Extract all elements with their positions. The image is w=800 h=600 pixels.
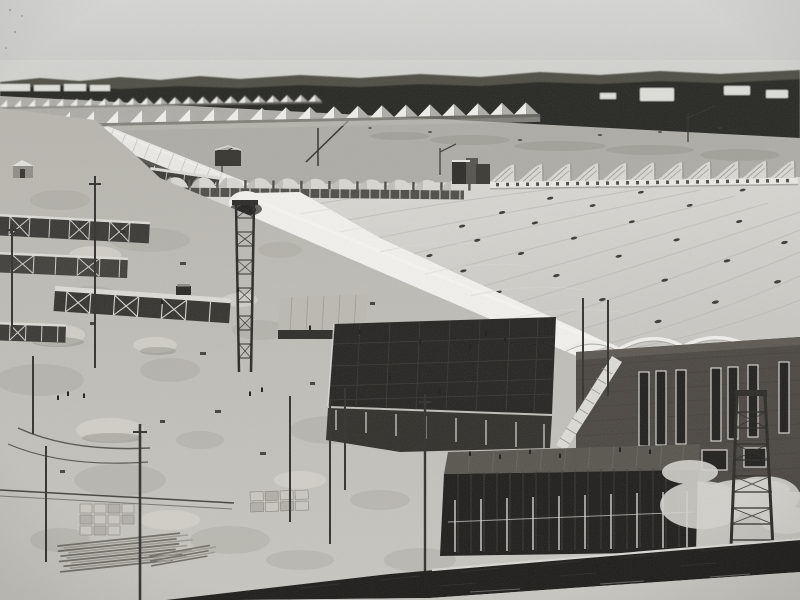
vignette <box>0 0 800 600</box>
construction-site-photo: black-and-white aerial photograph <box>0 0 800 600</box>
photo-canvas: black-and-white aerial photograph <box>0 0 800 600</box>
